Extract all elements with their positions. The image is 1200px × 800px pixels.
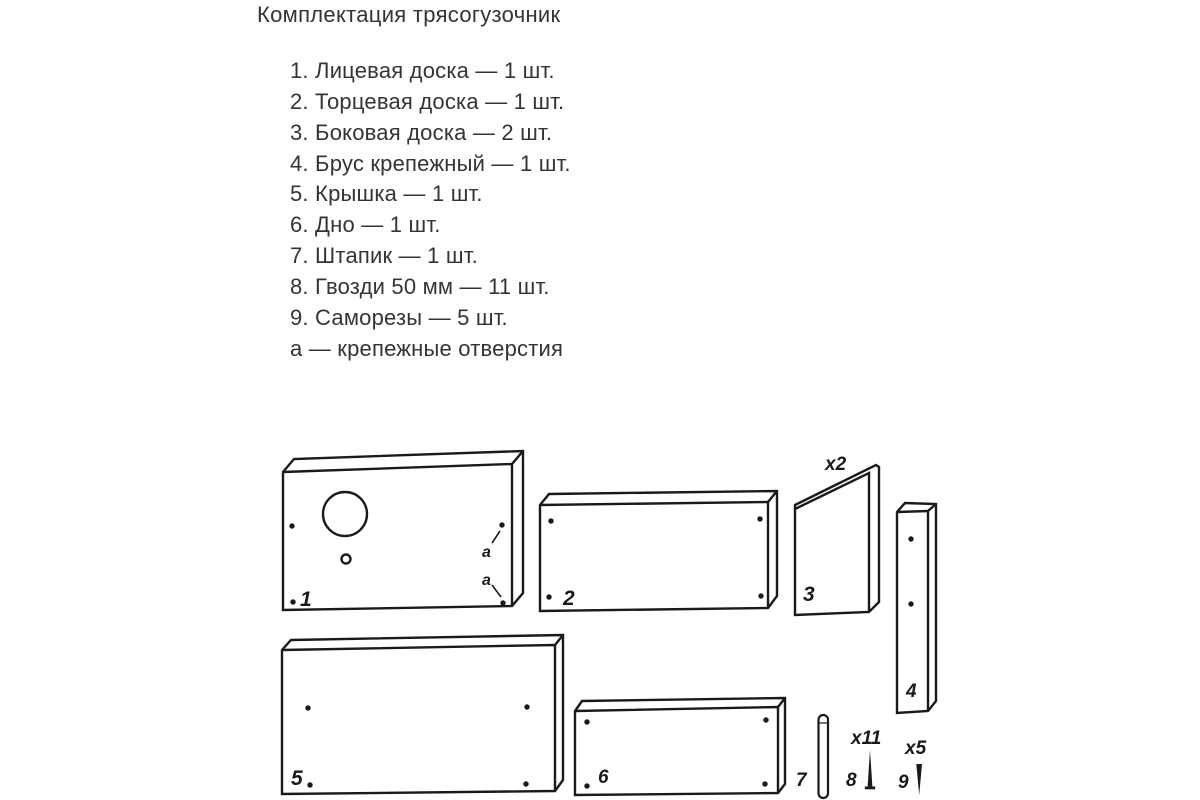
part6-label: 6 <box>598 767 609 788</box>
part5-outline <box>282 635 563 794</box>
part1-label: 1 <box>300 588 312 611</box>
part4-mounting-bar-drawing: 4 <box>897 503 936 713</box>
mount-hole-dot <box>584 719 589 724</box>
part9-label: 9 <box>898 772 909 793</box>
part7-bead-stick-drawing: 7 <box>796 715 828 798</box>
part8-count-label: x11 <box>850 728 881 749</box>
part5-label: 5 <box>291 767 303 790</box>
nail-shank <box>868 750 873 787</box>
mount-hole-dot <box>908 601 913 606</box>
mount-hole-dot <box>500 600 505 605</box>
instruction-page: Комплектация трясогузочник 1. Лицевая до… <box>0 0 1200 800</box>
mount-hole-dot <box>524 704 529 709</box>
mount-hole-dot <box>584 783 589 788</box>
part8-label: 8 <box>846 770 857 791</box>
part4-label: 4 <box>905 681 917 702</box>
part3-count-label: x2 <box>824 454 847 475</box>
part1-entrance-hole <box>323 492 367 536</box>
mount-hole-dot <box>523 781 528 786</box>
part9-count-label: x5 <box>904 738 927 759</box>
part2-end-board-drawing: 2 <box>540 491 777 611</box>
part7-stick <box>819 715 829 798</box>
part2-outline <box>540 491 777 611</box>
part1-front-board-drawing: а а 1 <box>283 451 523 611</box>
part8-nails-drawing: x11 8 <box>846 728 881 791</box>
part3-label: 3 <box>803 583 815 606</box>
mount-hole-dot <box>546 594 551 599</box>
mount-hole-dot <box>289 523 294 528</box>
mount-hole-dot <box>762 781 767 786</box>
mount-hole-dot <box>908 536 913 541</box>
parts-diagram: а а 1 2 x2 3 4 <box>0 0 1200 800</box>
mount-hole-dot <box>305 705 310 710</box>
part5-lid-drawing: 5 <box>282 635 563 794</box>
mount-hole-dot <box>548 518 553 523</box>
mount-hole-dot <box>757 516 762 521</box>
mount-hole-dot <box>290 599 295 604</box>
part6-bottom-drawing: 6 <box>575 698 785 795</box>
part9-screws-drawing: x5 9 <box>898 738 927 795</box>
mount-hole-dot <box>499 522 504 527</box>
mount-hole-dot <box>307 782 312 787</box>
part1-perch-hole <box>342 555 351 564</box>
part7-label: 7 <box>796 770 808 791</box>
mount-hole-dot <box>758 593 763 598</box>
nail-head <box>865 787 875 790</box>
hole-marker-label: а <box>482 544 491 561</box>
mount-hole-dot <box>763 717 768 722</box>
part2-label: 2 <box>562 587 575 610</box>
part3-side-board-drawing: x2 3 <box>795 454 879 615</box>
hole-marker-label: а <box>482 572 491 589</box>
screw-body <box>916 764 922 795</box>
